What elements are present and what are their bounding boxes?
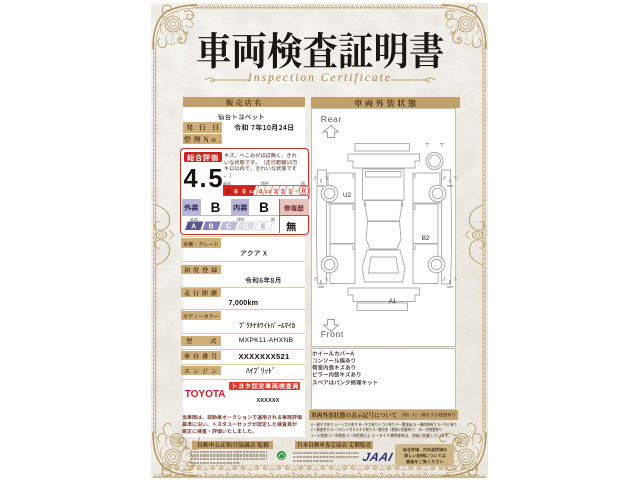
svg-text:E: E — [261, 223, 266, 230]
svg-text:B: B — [209, 223, 214, 230]
svg-text:D: D — [243, 223, 248, 230]
svg-text:3: 3 — [273, 189, 277, 196]
svg-text:5: 5 — [242, 189, 246, 196]
svg-text:6: 6 — [234, 189, 238, 196]
svg-text:mm: mm — [447, 183, 454, 188]
svg-text:4.5: 4.5 — [249, 189, 256, 194]
svg-text:4: 4 — [258, 189, 262, 196]
svg-text:1: 1 — [288, 189, 292, 196]
svg-text:mm: mm — [317, 183, 324, 188]
svg-text:3.5: 3.5 — [264, 189, 271, 194]
svg-text:2: 2 — [281, 189, 285, 196]
svg-text:S: S — [225, 188, 230, 195]
svg-text:C: C — [226, 223, 231, 230]
svg-text:mm: mm — [447, 284, 454, 289]
svg-text:A: A — [191, 223, 196, 230]
svg-text:＊: ＊ — [294, 188, 298, 194]
svg-text:mm: mm — [317, 284, 324, 289]
